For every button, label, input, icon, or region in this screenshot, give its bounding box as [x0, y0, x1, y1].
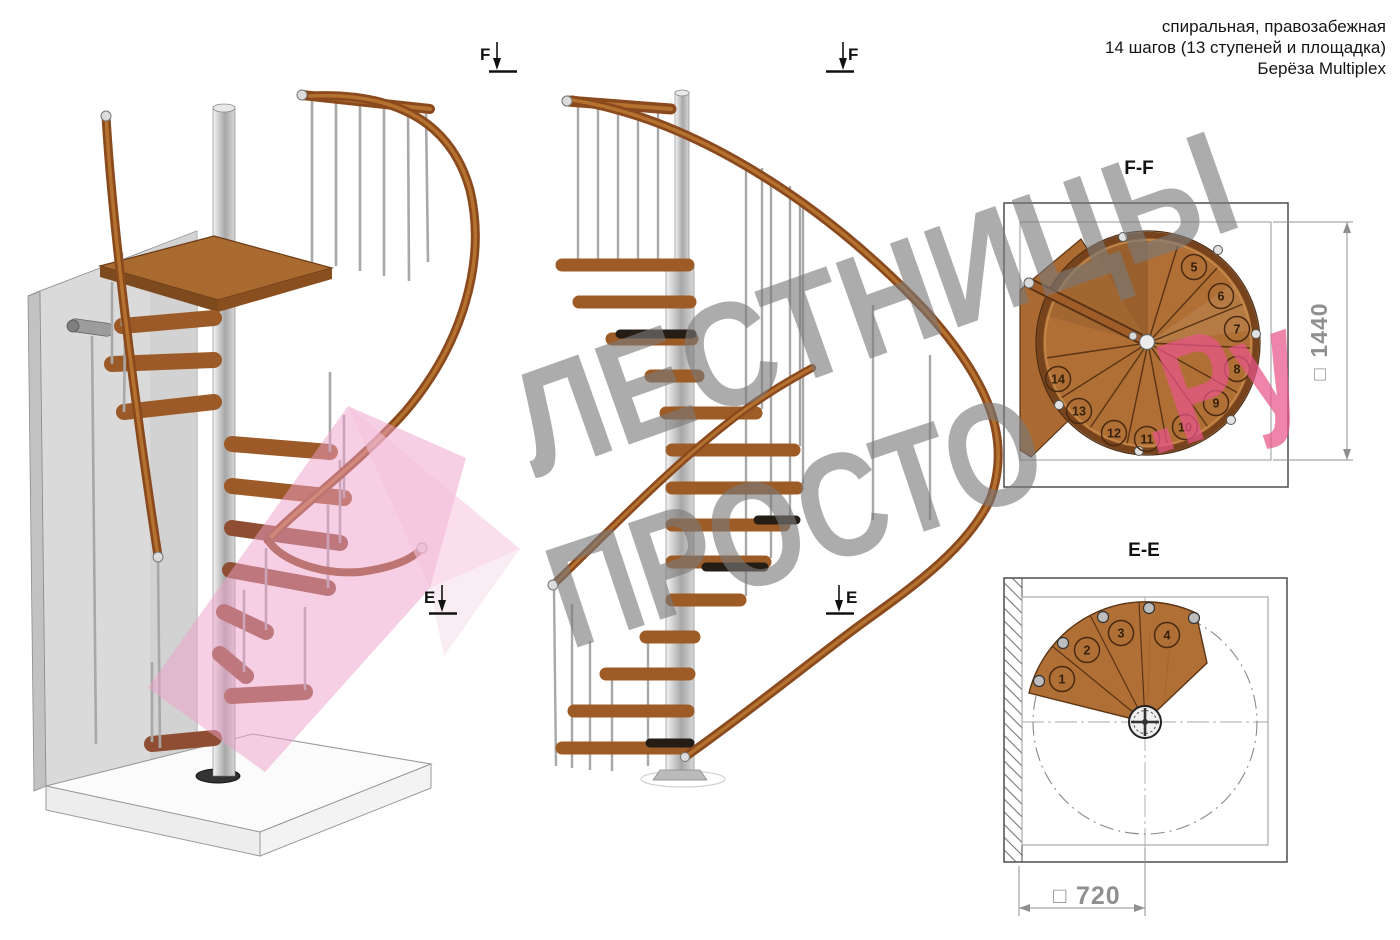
section-plane-e	[148, 406, 520, 772]
ff-dimension-value: 1440	[1306, 302, 1332, 357]
pole-upper	[675, 92, 689, 272]
elevation-view	[548, 90, 998, 787]
ff-title: F-F	[1124, 158, 1154, 179]
ee-plan-view: E-E	[1004, 540, 1287, 916]
step-number-label: 11	[1140, 433, 1153, 447]
ff-center-pole	[1140, 335, 1155, 350]
step-number-label: 13	[1072, 405, 1086, 419]
header-steps-line: 14 шагов (13 ступеней и площадка)	[1105, 37, 1386, 58]
ff-dimension-symbol: □	[1309, 367, 1331, 380]
page: спиральная, правозабежная 14 шагов (13 с…	[0, 0, 1400, 940]
step-number-label: 7	[1234, 323, 1241, 337]
pole-top-cap	[213, 104, 235, 112]
perspective-view	[28, 90, 520, 856]
ee-title: E-E	[1128, 540, 1160, 561]
step-number-label: 6	[1218, 290, 1225, 304]
step-number-label: 12	[1107, 427, 1121, 441]
pole-base	[653, 770, 707, 780]
ee-center-pole	[1129, 706, 1161, 738]
header-material-line: Берёза Multiplex	[1105, 58, 1386, 79]
step-number-label: 10	[1178, 421, 1192, 435]
section-marker-f-left: F	[480, 42, 517, 72]
section-marker-f-right: F	[826, 42, 858, 72]
drawing-header: спиральная, правозабежная 14 шагов (13 с…	[1105, 16, 1386, 79]
step-number-label: 2	[1084, 644, 1091, 658]
marker-letter-f: F	[848, 45, 858, 64]
step-number-label: 1	[1059, 673, 1066, 687]
technical-drawing-canvas: F-F	[0, 0, 1400, 940]
section-marker-e-right: E	[826, 585, 857, 614]
marker-letter-f: F	[480, 45, 490, 64]
step-number-label: 4	[1164, 629, 1171, 643]
step-number-label: 9	[1213, 397, 1220, 411]
step-number-label: 14	[1051, 373, 1065, 387]
step-number-label: 3	[1118, 627, 1125, 641]
ff-plan-view: F-F	[1004, 158, 1353, 487]
ee-dimension-value: 720	[1076, 882, 1121, 910]
marker-letter-e: E	[846, 588, 857, 607]
header-type-line: спиральная, правозабежная	[1105, 16, 1386, 37]
ee-dimension-symbol: □	[1053, 883, 1067, 908]
step-number-label: 8	[1234, 363, 1241, 377]
step-number-label: 5	[1191, 261, 1198, 275]
marker-letter-e: E	[424, 588, 435, 607]
ee-wall-hatch	[1004, 578, 1022, 862]
